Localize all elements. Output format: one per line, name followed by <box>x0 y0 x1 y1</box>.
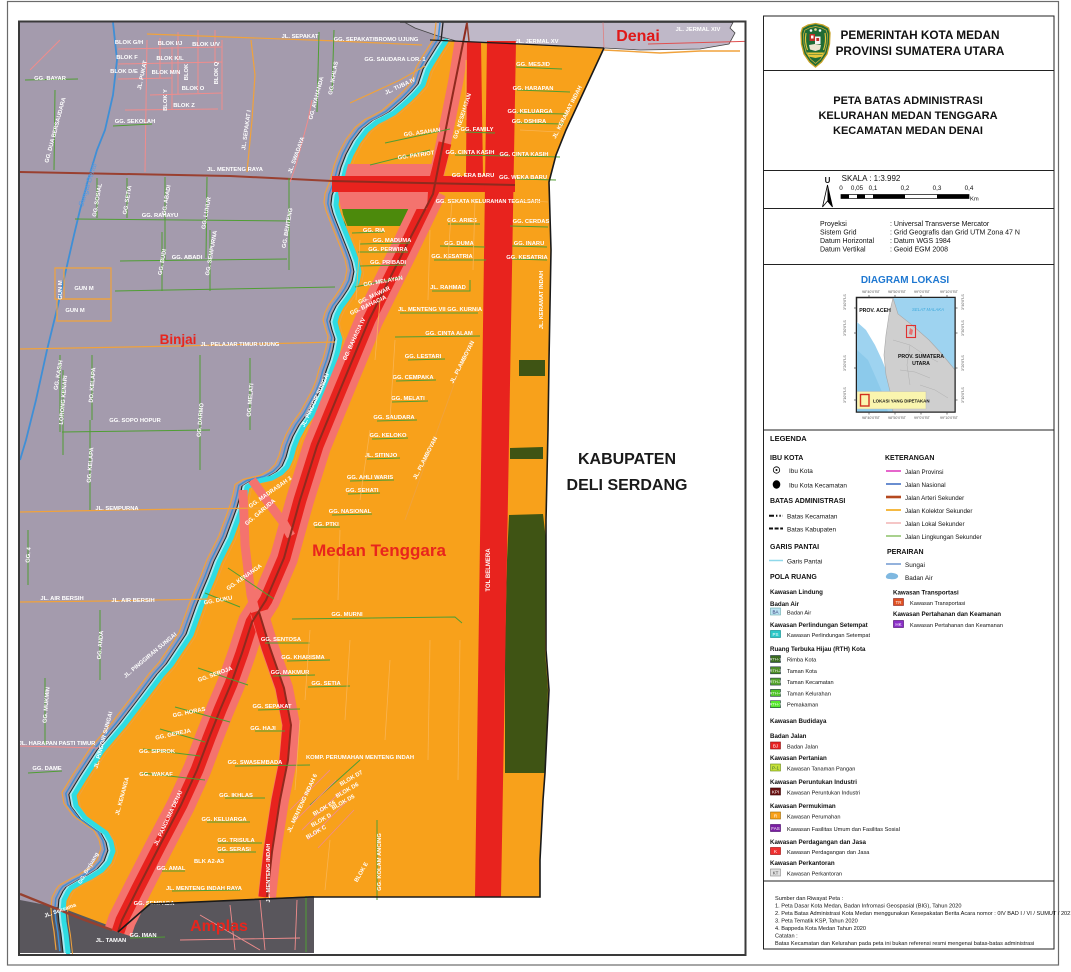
svg-text:Kawasan Perlindungan Setempat: Kawasan Perlindungan Setempat <box>787 633 870 639</box>
svg-text:Sistem Grid: Sistem Grid <box>820 230 857 237</box>
svg-text:BLOK I/J: BLOK I/J <box>158 41 182 47</box>
svg-text:GG. MADUMA: GG. MADUMA <box>373 238 412 244</box>
svg-text:PROV. SUMATERA: PROV. SUMATERA <box>898 354 944 360</box>
svg-text:Badan Jalan: Badan Jalan <box>787 745 818 751</box>
svg-text:Ibu Kota Kecamatan: Ibu Kota Kecamatan <box>789 483 847 490</box>
svg-text:Taman Kecamatan: Taman Kecamatan <box>787 680 834 686</box>
svg-text:3°40'0"LS: 3°40'0"LS <box>961 294 965 310</box>
svg-text:Kawasan Budidaya: Kawasan Budidaya <box>770 718 827 725</box>
svg-text:Garis Pantai: Garis Pantai <box>787 559 822 566</box>
svg-text:BLOK D/E: BLOK D/E <box>110 69 138 75</box>
svg-text:Kawasan Lindung: Kawasan Lindung <box>770 589 823 596</box>
svg-text:Jalan Kolektor Sekunder: Jalan Kolektor Sekunder <box>905 508 972 515</box>
svg-text:K: K <box>774 849 777 854</box>
svg-text:Badan Air: Badan Air <box>770 601 800 608</box>
svg-text:PERAIRAN: PERAIRAN <box>887 549 924 556</box>
svg-text:GG. KELOKO: GG. KELOKO <box>369 433 407 439</box>
svg-text:SELAT MALAKA: SELAT MALAKA <box>912 307 944 312</box>
svg-text:Kawasan Permukiman: Kawasan Permukiman <box>770 803 836 810</box>
svg-text:GG. CERDAS: GG. CERDAS <box>513 219 550 225</box>
svg-text:98°40'0"BT: 98°40'0"BT <box>862 290 881 294</box>
svg-text:Kawasan Transportasi: Kawasan Transportasi <box>893 590 959 597</box>
svg-text:: Grid Geografis dan Grid UTM: : Grid Geografis dan Grid UTM Zona 47 N <box>890 230 1020 237</box>
svg-text:Kawasan Perdagangan dan Jasa: Kawasan Perdagangan dan Jasa <box>787 850 870 856</box>
svg-text:4. Bappeda Kota Medan Tahun 20: 4. Bappeda Kota Medan Tahun 2020 <box>775 926 866 932</box>
svg-text:Jalan Arteri Sekunder: Jalan Arteri Sekunder <box>905 495 964 502</box>
svg-text:GUN M: GUN M <box>58 280 64 299</box>
svg-text:GG. SEKOLAH: GG. SEKOLAH <box>115 119 156 125</box>
svg-text:Pemakaman: Pemakaman <box>787 703 818 709</box>
svg-text:PETA BATAS ADMINISTRASI: PETA BATAS ADMINISTRASI <box>833 95 983 107</box>
svg-text:Kawasan Pertanian: Kawasan Pertanian <box>770 755 827 762</box>
svg-text:GG. ERA BARU: GG. ERA BARU <box>452 173 495 179</box>
svg-text:BLOK U/V: BLOK U/V <box>192 42 220 48</box>
svg-text:GG. KHARISMA: GG. KHARISMA <box>281 655 325 661</box>
svg-text:GG. KESATRIA: GG. KESATRIA <box>506 255 548 261</box>
svg-text:GG. PTKI: GG. PTKI <box>313 522 339 528</box>
svg-text:JL. RAHMAD: JL. RAHMAD <box>430 285 466 291</box>
svg-text:Rimba Kota: Rimba Kota <box>787 658 817 664</box>
svg-text:Kawasan Fasilitas Umum dan Fas: Kawasan Fasilitas Umum dan Fasilitas Sos… <box>787 827 900 833</box>
svg-text:IBU KOTA: IBU KOTA <box>770 455 803 462</box>
svg-text:GG. KELUARGA: GG. KELUARGA <box>201 817 247 823</box>
svg-text:GG. KOLAM ANCING: GG. KOLAM ANCING <box>377 833 383 891</box>
svg-text:RTH-2: RTH-2 <box>770 668 782 673</box>
svg-text:PROVINSI SUMATERA UTARA: PROVINSI SUMATERA UTARA <box>836 44 1005 58</box>
svg-text:Kawasan Perlindungan Setempat: Kawasan Perlindungan Setempat <box>770 622 868 629</box>
svg-text:Catatan :: Catatan : <box>775 934 798 940</box>
svg-text:0,1: 0,1 <box>869 185 878 192</box>
svg-text:Kawasan Perumahan: Kawasan Perumahan <box>787 815 841 821</box>
svg-text:RTH-4: RTH-4 <box>770 690 782 695</box>
svg-text:1. Peta Dasar Kota Medan, Bada: 1. Peta Dasar Kota Medan, Badan Infromas… <box>775 904 961 910</box>
svg-text:99°0'0"BT: 99°0'0"BT <box>914 416 931 420</box>
svg-text:GG. WEKA BARU: GG. WEKA BARU <box>499 175 547 181</box>
svg-text:BLOK Y: BLOK Y <box>163 89 169 111</box>
svg-text:GG. MAKMUR: GG. MAKMUR <box>271 670 310 676</box>
svg-text:Jalan Nasional: Jalan Nasional <box>905 482 946 489</box>
svg-text:FAS: FAS <box>771 826 780 831</box>
svg-text:GG. CINTA KASIH: GG. CINTA KASIH <box>446 150 495 156</box>
svg-text:Taman Kelurahan: Taman Kelurahan <box>787 691 831 697</box>
svg-text:GG. MESJID: GG. MESJID <box>516 62 550 68</box>
svg-text:KT: KT <box>773 870 779 875</box>
svg-text:LEGENDA: LEGENDA <box>770 434 807 443</box>
svg-text:RTH-1: RTH-1 <box>770 657 782 662</box>
svg-text:BLOK: BLOK <box>184 63 190 80</box>
svg-text:PEMERINTAH KOTA MEDAN: PEMERINTAH KOTA MEDAN <box>840 28 999 42</box>
svg-text:PS: PS <box>772 632 778 637</box>
svg-text:0: 0 <box>839 185 843 192</box>
svg-text:GG. SAUDARA LOR. 1: GG. SAUDARA LOR. 1 <box>364 57 426 63</box>
svg-text:Kawasan Perkantoran: Kawasan Perkantoran <box>787 872 842 878</box>
svg-text:Km: Km <box>970 197 979 203</box>
svg-text:GG. IMAN: GG. IMAN <box>129 933 156 939</box>
svg-text:Batas Kabupaten: Batas Kabupaten <box>787 527 836 534</box>
svg-text:JL. KERAMAT INDAH: JL. KERAMAT INDAH <box>539 271 545 330</box>
svg-text:GG. NASIONAL: GG. NASIONAL <box>329 509 372 515</box>
svg-text:GG. HAJI: GG. HAJI <box>250 726 276 732</box>
svg-text:U: U <box>825 176 831 185</box>
svg-text:JL. SITINJO: JL. SITINJO <box>365 453 398 459</box>
svg-text:JL. MENTENG RAYA: JL. MENTENG RAYA <box>207 167 264 173</box>
svg-text:0,3: 0,3 <box>933 185 942 192</box>
svg-text:DIAGRAM LOKASI: DIAGRAM LOKASI <box>861 275 950 286</box>
svg-text:JL. HARAPAN PASTI TIMUR: JL. HARAPAN PASTI TIMUR <box>19 741 97 747</box>
svg-text:3°10'0"LS: 3°10'0"LS <box>961 387 965 403</box>
svg-text:GG. SEPAKAT/BROMO UJUNG: GG. SEPAKAT/BROMO UJUNG <box>334 37 419 43</box>
svg-text:Taman Kota: Taman Kota <box>787 669 818 675</box>
svg-text:TR: TR <box>896 600 903 605</box>
svg-text:DELI SERDANG: DELI SERDANG <box>567 477 688 494</box>
svg-text:PROV. ACEH: PROV. ACEH <box>859 308 891 314</box>
svg-text:Kawasan Tanaman Pangan: Kawasan Tanaman Pangan <box>787 767 855 773</box>
svg-text:0,05: 0,05 <box>851 185 864 192</box>
svg-text:GARIS PANTAI: GARIS PANTAI <box>770 544 819 551</box>
svg-text:98°40'0"BT: 98°40'0"BT <box>862 416 881 420</box>
svg-text:GG. DAME: GG. DAME <box>32 766 61 772</box>
svg-text:Datum Horizontal: Datum Horizontal <box>820 238 875 245</box>
svg-text:99°0'0"BT: 99°0'0"BT <box>914 290 931 294</box>
svg-text:: Datum WGS 1984: : Datum WGS 1984 <box>890 238 951 245</box>
svg-text:KOMP. PERUMAHAN MENTENG INDAH: KOMP. PERUMAHAN MENTENG INDAH <box>306 755 414 761</box>
svg-text:JL. PELAJAR TIMUR UJUNG: JL. PELAJAR TIMUR UJUNG <box>201 342 280 348</box>
svg-text:Batas Kecamatan dan Kelurahan: Batas Kecamatan dan Kelurahan pada peta … <box>775 941 1034 947</box>
svg-text:GG. ARIES: GG. ARIES <box>447 218 477 224</box>
svg-text:3°20'0"LS: 3°20'0"LS <box>961 355 965 371</box>
svg-text:0,4: 0,4 <box>965 185 974 192</box>
svg-text:P-1: P-1 <box>772 765 780 770</box>
svg-text:99°10'0"BT: 99°10'0"BT <box>940 416 959 420</box>
svg-text:GG. WAKAF: GG. WAKAF <box>139 772 173 778</box>
svg-text:Sumber dan Riwayat Peta :: Sumber dan Riwayat Peta : <box>775 896 844 902</box>
svg-text:GG. INARU: GG. INARU <box>514 241 545 247</box>
svg-text:GG. IKHLAS: GG. IKHLAS <box>219 793 253 799</box>
svg-text:GG. BAYAR: GG. BAYAR <box>34 76 67 82</box>
svg-text:Jalan Lingkungan Sekunder: Jalan Lingkungan Sekunder <box>905 534 982 541</box>
svg-text:GG. TRISULA: GG. TRISULA <box>217 838 255 844</box>
svg-text:Batas Kecamatan: Batas Kecamatan <box>787 514 838 521</box>
svg-text:GG. PRIBADI: GG. PRIBADI <box>370 260 406 266</box>
svg-text:Kawasan Pertahanan dan Keamana: Kawasan Pertahanan dan Keamanan <box>893 611 1001 618</box>
svg-text:98°50'0"BT: 98°50'0"BT <box>888 290 907 294</box>
svg-text:GG. SWASEMBADA: GG. SWASEMBADA <box>228 760 284 766</box>
svg-text:BLOK Q: BLOK Q <box>214 61 220 84</box>
svg-text:Amplas: Amplas <box>190 918 248 935</box>
svg-text:Sungai: Sungai <box>905 562 925 569</box>
svg-text:: Universal Transverse Mercato: : Universal Transverse Mercator <box>890 221 990 228</box>
svg-text:Binjai: Binjai <box>160 332 197 347</box>
svg-text:98°50'0"BT: 98°50'0"BT <box>888 416 907 420</box>
svg-text:GG. SENTOSA: GG. SENTOSA <box>261 637 302 643</box>
svg-text:99°10'0"BT: 99°10'0"BT <box>940 290 959 294</box>
svg-text:UTARA: UTARA <box>912 361 930 367</box>
svg-text:BA: BA <box>772 609 778 614</box>
svg-text:BJ: BJ <box>773 743 778 748</box>
svg-text:Datum Vertikal: Datum Vertikal <box>820 247 866 254</box>
svg-text:GG. HARAPAN: GG. HARAPAN <box>513 86 554 92</box>
svg-text:2. Peta Batas Administrasi Kot: 2. Peta Batas Administrasi Kota Medan me… <box>775 911 1071 917</box>
svg-text:GG. KESATRIA: GG. KESATRIA <box>431 254 473 260</box>
svg-text:BATAS ADMINISTRASI: BATAS ADMINISTRASI <box>770 498 845 505</box>
svg-text:Badan Air: Badan Air <box>905 575 934 582</box>
svg-text:3°40'0"LS: 3°40'0"LS <box>843 294 847 310</box>
svg-text:GG. PERWIRA: GG. PERWIRA <box>368 247 408 253</box>
svg-text:GG. MELATI: GG. MELATI <box>391 396 425 402</box>
svg-text:Ibu Kota: Ibu Kota <box>789 468 813 475</box>
svg-text:TOL BELMERA: TOL BELMERA <box>486 548 492 592</box>
svg-text:JL. SEPAKAT: JL. SEPAKAT <box>282 34 319 40</box>
svg-text:KPI: KPI <box>772 789 779 794</box>
svg-text:SKALA : 1:3.992: SKALA : 1:3.992 <box>842 174 901 183</box>
svg-text:Kawasan Peruntukan Industri: Kawasan Peruntukan Industri <box>787 791 860 797</box>
svg-text:GG. KELUARGA: GG. KELUARGA <box>507 109 553 115</box>
svg-text:KETERANGAN: KETERANGAN <box>885 455 934 462</box>
svg-text:Badan Jalan: Badan Jalan <box>770 733 807 740</box>
svg-text:JL. AIR BERSIH: JL. AIR BERSIH <box>40 596 83 602</box>
svg-text:JL. SEMPURNA: JL. SEMPURNA <box>95 506 139 512</box>
svg-text:BLOK M/N: BLOK M/N <box>152 70 181 76</box>
svg-text:Kawasan Peruntukan Industri: Kawasan Peruntukan Industri <box>770 779 857 786</box>
svg-text:Kawasan Perkantoran: Kawasan Perkantoran <box>770 860 835 867</box>
svg-text:GG. SEPAKAT: GG. SEPAKAT <box>252 704 292 710</box>
svg-text:Kawasan Transportasi: Kawasan Transportasi <box>910 601 965 607</box>
svg-text:3°10'0"LS: 3°10'0"LS <box>843 387 847 403</box>
svg-text:JL. MENTENG INDAH: JL. MENTENG INDAH <box>266 844 272 903</box>
svg-text:LOKASI YANG DIPETAKAN: LOKASI YANG DIPETAKAN <box>873 399 930 404</box>
svg-text:Kawasan Pertahanan dan Keamana: Kawasan Pertahanan dan Keamanan <box>910 623 1003 629</box>
svg-text:GG. SOPO HOPUR: GG. SOPO HOPUR <box>109 418 161 424</box>
svg-text:GG. RAHAYU: GG. RAHAYU <box>142 213 179 219</box>
svg-text:GG. SETIA: GG. SETIA <box>311 681 341 687</box>
svg-text:KABUPATEN: KABUPATEN <box>578 451 676 468</box>
svg-text:JL. MENTENG VII GG. KURNIA: JL. MENTENG VII GG. KURNIA <box>398 307 483 313</box>
svg-text:3°30'0"LS: 3°30'0"LS <box>843 320 847 336</box>
svg-text:GUN M: GUN M <box>65 308 84 314</box>
svg-text:JL. TAMAN: JL. TAMAN <box>96 938 126 944</box>
svg-text:GG. AMAL: GG. AMAL <box>157 866 186 872</box>
svg-text:GG. AHLI WARIS: GG. AHLI WARIS <box>347 475 393 481</box>
svg-text:JL. JERMAL XIV: JL. JERMAL XIV <box>676 27 721 33</box>
svg-text:KECAMATAN MEDAN DENAI: KECAMATAN MEDAN DENAI <box>833 125 983 137</box>
svg-text:GG. LESTARI: GG. LESTARI <box>405 354 442 360</box>
svg-text:Denai: Denai <box>616 28 660 45</box>
svg-text:GG. SERASI: GG. SERASI <box>217 847 251 853</box>
svg-text:Proyeksi: Proyeksi <box>820 221 847 228</box>
svg-text:GG. RIA: GG. RIA <box>363 228 386 234</box>
svg-text:BLK A2-A3: BLK A2-A3 <box>194 859 225 865</box>
svg-text:HK: HK <box>895 622 901 627</box>
svg-text:Badan Air: Badan Air <box>787 611 811 617</box>
svg-text:GG. DSHIRA: GG. DSHIRA <box>512 119 547 125</box>
svg-text:GG. SIPIROK: GG. SIPIROK <box>139 749 176 755</box>
svg-text:POLA RUANG: POLA RUANG <box>770 574 817 581</box>
svg-text:JL. AIR BERSIH: JL. AIR BERSIH <box>111 598 154 604</box>
svg-text:GG. FAMILY: GG. FAMILY <box>461 127 494 133</box>
svg-text:: Geoid EGM 2008: : Geoid EGM 2008 <box>890 247 948 254</box>
svg-text:3°30'0"LS: 3°30'0"LS <box>961 320 965 336</box>
svg-text:BLOK G/H: BLOK G/H <box>115 40 143 46</box>
svg-text:Ruang Terbuka Hijau (RTH) Kota: Ruang Terbuka Hijau (RTH) Kota <box>770 646 866 653</box>
svg-text:BLOK K/L: BLOK K/L <box>156 56 184 62</box>
svg-text:GG. ABADI: GG. ABADI <box>172 255 203 261</box>
svg-text:JL. MENTENG INDAH RAYA: JL. MENTENG INDAH RAYA <box>166 886 243 892</box>
svg-text:3°20'0"LS: 3°20'0"LS <box>843 355 847 371</box>
svg-text:KELURAHAN MEDAN TENGGARA: KELURAHAN MEDAN TENGGARA <box>818 110 997 122</box>
svg-text:Kawasan Perdagangan dan Jasa: Kawasan Perdagangan dan Jasa <box>770 839 867 846</box>
svg-text:RTH-7: RTH-7 <box>770 702 782 707</box>
svg-text:GG. CEMPAKA: GG. CEMPAKA <box>392 375 434 381</box>
svg-text:3. Peta Tematik KSP, Tahun 202: 3. Peta Tematik KSP, Tahun 2020 <box>775 919 858 925</box>
svg-text:GG. CINTA ALAM: GG. CINTA ALAM <box>425 331 473 337</box>
svg-text:Medan Tenggara: Medan Tenggara <box>312 541 446 560</box>
svg-text:BLOK O: BLOK O <box>182 86 205 92</box>
svg-text:GG. SAUDARA: GG. SAUDARA <box>373 415 415 421</box>
svg-text:Jalan Provinsi: Jalan Provinsi <box>905 469 944 476</box>
svg-text:BLOK Z: BLOK Z <box>173 103 195 109</box>
svg-text:GG. CINTA KASIH: GG. CINTA KASIH <box>500 152 549 158</box>
svg-text:BLOK F: BLOK F <box>116 55 138 61</box>
svg-text:GUN M: GUN M <box>74 286 93 292</box>
svg-text:Jalan Lokal Sekunder: Jalan Lokal Sekunder <box>905 521 965 528</box>
svg-text:GG. MURNI: GG. MURNI <box>331 612 363 618</box>
svg-text:0,2: 0,2 <box>901 185 910 192</box>
svg-text:RTH-3: RTH-3 <box>770 679 782 684</box>
svg-text:GG. SEHATI: GG. SEHATI <box>345 488 378 494</box>
